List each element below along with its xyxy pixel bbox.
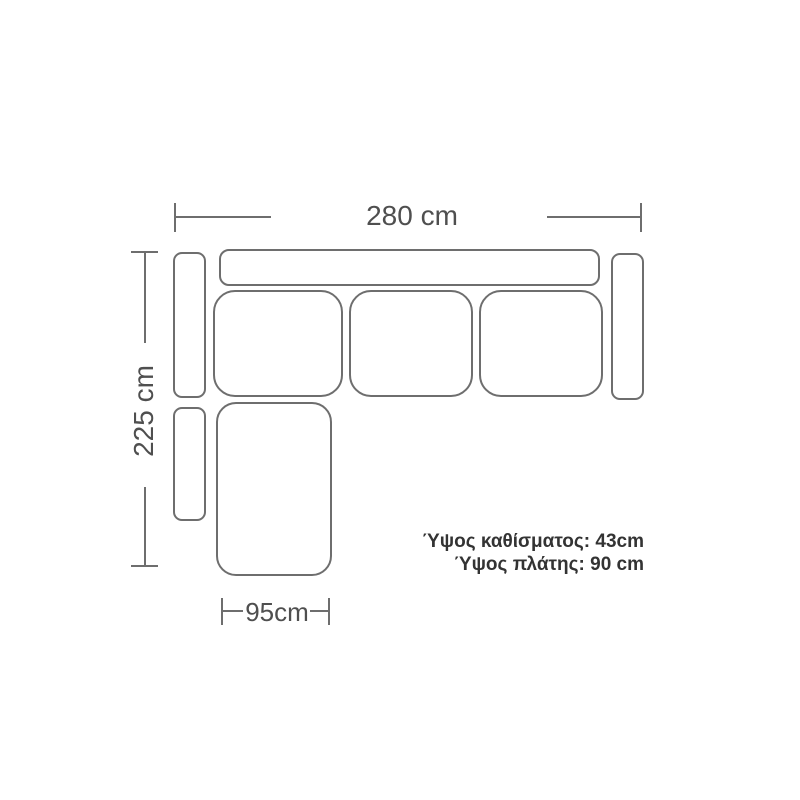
- top-dim-label: 280 cm: [322, 202, 502, 230]
- back-cushion: [219, 249, 600, 286]
- seat-cushion-1: [213, 290, 343, 397]
- sofa-dimension-diagram: 280 cm 225 cm 95cm Ύψος καθίσματος: 43cm…: [0, 0, 800, 800]
- bottom-dim-label: 95cm: [217, 599, 337, 625]
- seat-cushion-2: [349, 290, 473, 397]
- left-dim-lower-segment: [144, 487, 146, 567]
- bottom-dim-right-tick: [328, 598, 330, 625]
- chaise-cushion: [216, 402, 332, 576]
- left-dim-label: 225 cm: [130, 321, 158, 501]
- armrest-right: [611, 253, 644, 400]
- top-dim-right-tick: [640, 203, 642, 232]
- top-dim-left-segment: [174, 216, 271, 218]
- bottom-dim-right-segment: [310, 610, 330, 612]
- note-seat-height: Ύψος καθίσματος: 43cm: [422, 530, 644, 553]
- seat-cushion-3: [479, 290, 603, 397]
- top-dim-right-segment: [547, 216, 642, 218]
- left-dim-bottom-tick: [131, 565, 158, 567]
- note-back-height: Ύψος πλάτης: 90 cm: [422, 553, 644, 576]
- armrest-left-lower: [173, 407, 206, 521]
- height-notes: Ύψος καθίσματος: 43cm Ύψος πλάτης: 90 cm: [422, 530, 644, 576]
- armrest-left-upper: [173, 252, 206, 398]
